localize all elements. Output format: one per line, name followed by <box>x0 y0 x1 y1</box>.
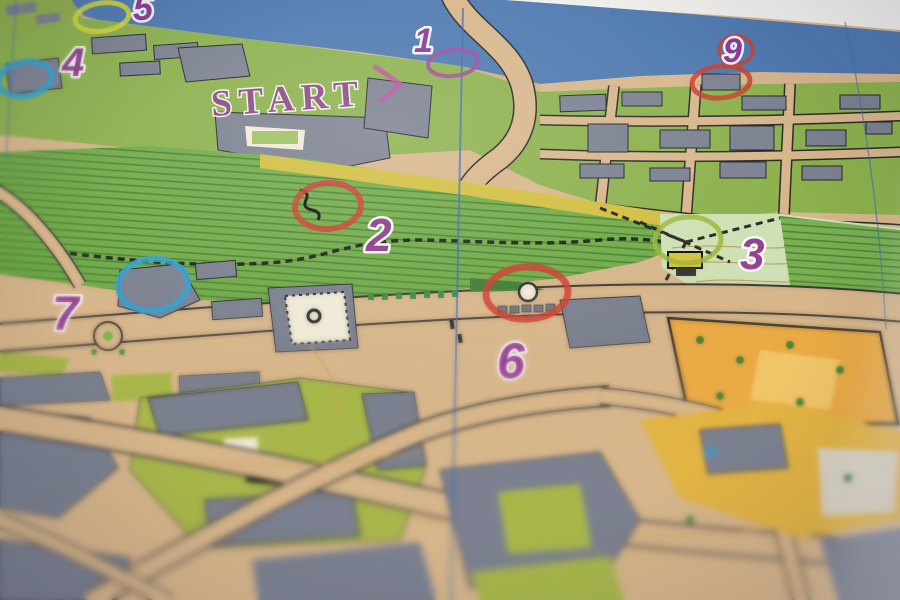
control-number-9: 9 <box>723 32 742 70</box>
control-number-6: 6 <box>497 333 526 389</box>
control-number-4: 4 <box>61 41 84 85</box>
orienteering-map: START 12345679 <box>0 0 900 600</box>
control-number-3: 3 <box>740 230 764 279</box>
control-number-7: 7 <box>52 288 81 341</box>
control-number-2: 2 <box>365 209 392 261</box>
orienteering-map-photo: START 12345679 <box>0 0 900 600</box>
control-number-1: 1 <box>414 22 433 60</box>
control-number-5: 5 <box>133 0 154 28</box>
